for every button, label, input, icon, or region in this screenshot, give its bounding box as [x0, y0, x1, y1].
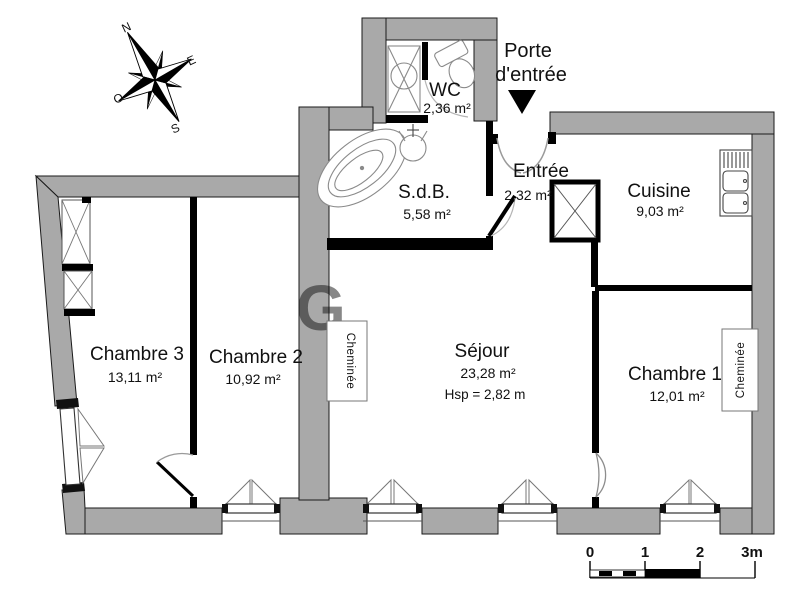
- wall-below-shaft: [591, 240, 598, 287]
- windows: [56, 398, 720, 521]
- wall-top-right: [550, 112, 774, 134]
- window-jamb: [551, 504, 557, 513]
- entree-area: 2,32 m²: [504, 187, 552, 203]
- sdb-sink: [399, 124, 427, 161]
- fireplace-chambre1: Cheminée: [722, 329, 758, 411]
- scale-label-2: 2: [696, 544, 704, 561]
- cuisine-name: Cuisine: [627, 181, 690, 202]
- wall-cuisine-chambre1: [595, 285, 752, 291]
- wc-door-leaf: [422, 42, 428, 80]
- compass-south-label: S: [169, 120, 182, 136]
- partition-walls: [190, 115, 752, 508]
- fireplace-sejour: Cheminée: [327, 321, 367, 401]
- wall-sdb-entree-stub: [486, 236, 493, 250]
- scale-segment-1-2: [645, 569, 700, 578]
- chambre3-name: Chambre 3: [90, 344, 184, 365]
- floor-plan: N E O S G: [0, 0, 800, 600]
- chambre1-name: Chambre 1: [628, 364, 722, 385]
- wall-bottom-1: [85, 508, 222, 534]
- entrance-label-line2: d'entrée: [495, 64, 567, 86]
- wall-right: [752, 112, 774, 534]
- entrance-right-jamb: [548, 132, 556, 144]
- scale-dash: [623, 571, 636, 576]
- window-casement: [691, 480, 716, 504]
- chambre2-area: 10,92 m²: [225, 371, 281, 387]
- wall-top-left: [36, 176, 322, 197]
- wall-bottom-3: [557, 508, 660, 534]
- window-casement: [367, 480, 391, 504]
- sejour-ceiling-height: Hsp = 2,82 m: [445, 387, 526, 402]
- window-jamb: [660, 504, 666, 513]
- scale-label-0: 0: [586, 544, 594, 561]
- sdb-name: S.d.B.: [398, 182, 450, 203]
- chambre1-door-arc-2: [596, 453, 599, 497]
- wall-left-lower-corner: [62, 488, 85, 534]
- scale-segment-0-1: [590, 570, 645, 577]
- window-casement: [529, 480, 553, 504]
- window-casement: [226, 480, 250, 504]
- entrance-label-line1: Porte: [504, 40, 552, 62]
- window-casement: [80, 448, 104, 483]
- wall-chambre3-chambre2-stub: [190, 497, 197, 508]
- window-sejour-right: [498, 480, 557, 521]
- duct-shaft-entree: [552, 182, 598, 240]
- window-chambre3-left: [56, 398, 104, 493]
- window-sill: [664, 504, 716, 513]
- wc-washbasin: [388, 46, 420, 112]
- window-casement: [664, 480, 689, 504]
- chambre3-door-leaf: [157, 462, 193, 496]
- fireplace-chambre1-label: Cheminée: [735, 342, 747, 398]
- wc-name: WC: [429, 80, 461, 101]
- window-sill: [502, 504, 553, 513]
- entree-name: Entrée: [513, 161, 569, 182]
- closet-chambre3-upper: [62, 197, 93, 271]
- window-casement: [252, 480, 276, 504]
- window-jamb: [498, 504, 504, 513]
- wall-chambre3-chambre2: [190, 197, 197, 455]
- window-sill: [226, 504, 276, 513]
- chambre2-name: Chambre 2: [209, 347, 303, 368]
- compass-rose: N E O S: [91, 11, 215, 142]
- cuisine-area: 9,03 m²: [636, 203, 684, 219]
- wall-sejour-chambre1-upper: [592, 291, 599, 453]
- compass-north-label: N: [119, 19, 133, 35]
- chambre3-door-arc: [157, 453, 193, 462]
- wall-bottom-2: [422, 508, 498, 534]
- window-jamb: [222, 504, 228, 513]
- sejour-name: Séjour: [455, 341, 511, 362]
- wall-sdb-sejour: [327, 238, 490, 250]
- window-jamb: [714, 504, 720, 513]
- window-sejour-left: [363, 480, 422, 521]
- window-casement: [502, 480, 526, 504]
- window-chambre1: [660, 480, 720, 521]
- wall-wc-sdb: [386, 115, 428, 123]
- compass-west-label: O: [111, 90, 125, 107]
- wall-wc-right: [474, 40, 497, 121]
- wc-area: 2,36 m²: [423, 100, 471, 116]
- window-chambre2: [222, 480, 280, 521]
- window-casement: [394, 480, 418, 504]
- compass-east-label: E: [185, 52, 198, 68]
- closet-chambre3-lower: [64, 271, 95, 316]
- scale-dash: [599, 571, 612, 576]
- window-sill: [367, 504, 418, 513]
- window-sill: [60, 408, 80, 485]
- window-jamb: [274, 504, 280, 513]
- scale-label-3: 3m: [741, 544, 763, 561]
- fireplace-sejour-label: Cheminée: [344, 333, 356, 389]
- wall-bottom-pier: [280, 498, 367, 534]
- sdb-area: 5,58 m²: [403, 206, 451, 222]
- wall-sdb-entree: [486, 121, 493, 196]
- chambre1-area: 12,01 m²: [649, 388, 705, 404]
- entrance-arrow-icon: [508, 90, 536, 114]
- window-casement: [78, 409, 104, 446]
- entrance-annotation: Porte d'entrée: [495, 40, 567, 114]
- floor-plan-svg: N E O S G: [0, 0, 800, 600]
- kitchen-sink: [720, 150, 752, 216]
- wall-sejour-chambre1-stub: [592, 497, 599, 508]
- sejour-area: 23,28 m²: [460, 365, 516, 381]
- scale-bar: 0 1 2 3m: [586, 544, 763, 578]
- wall-sdb-arm: [323, 107, 373, 130]
- window-jamb: [416, 504, 422, 513]
- scale-label-1: 1: [641, 544, 649, 561]
- window-jamb: [363, 504, 369, 513]
- chambre3-area: 13,11 m²: [108, 369, 163, 385]
